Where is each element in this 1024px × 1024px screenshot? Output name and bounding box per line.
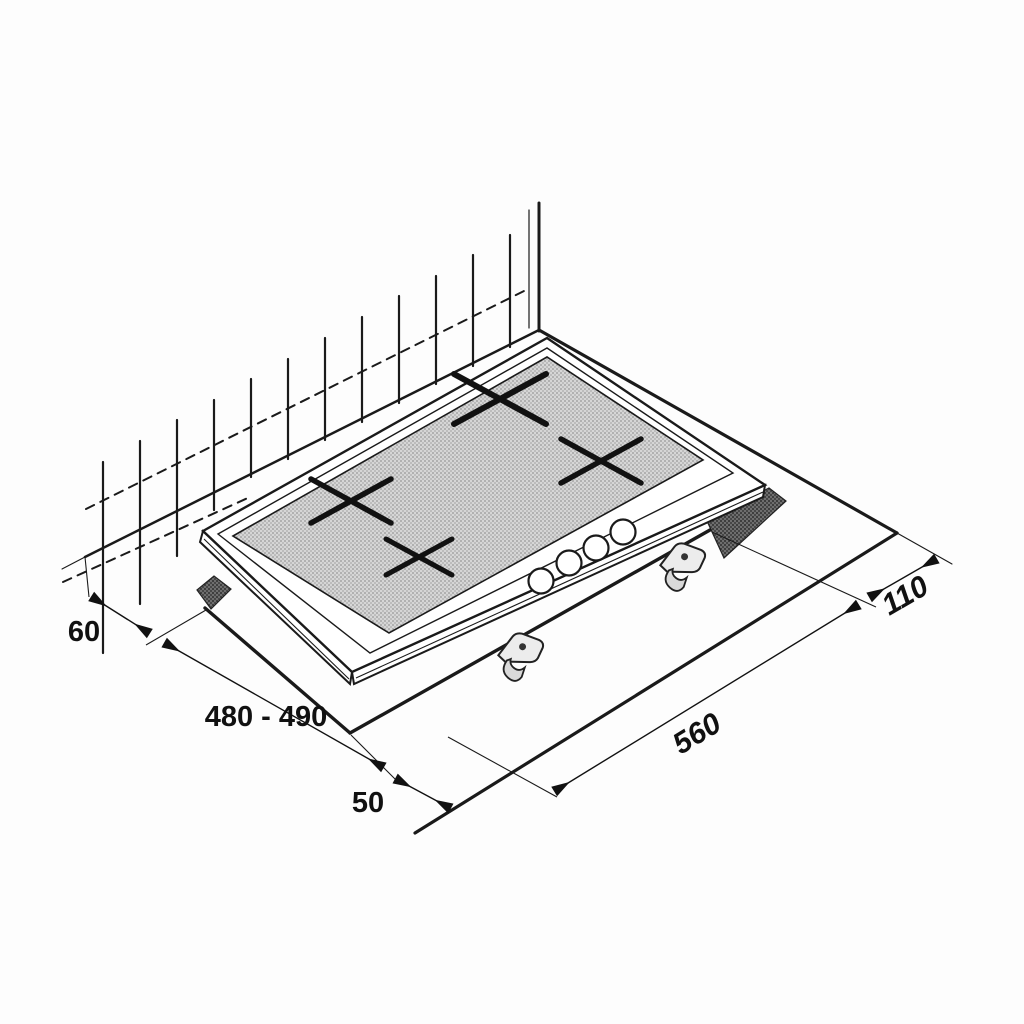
dimension-label-cutout-width: 560 xyxy=(667,707,727,761)
dimension-label-wall-clearance: 60 xyxy=(68,616,100,648)
fixing-clamp-icon xyxy=(658,541,708,592)
cutout-band-left xyxy=(197,576,231,609)
wall-base-line-ext xyxy=(62,557,85,569)
fixing-clamp-icon xyxy=(496,631,546,682)
worktop-back-edge-extension xyxy=(897,533,952,564)
installation-diagram-page: 60 480 - 490 50 560 110 xyxy=(0,0,1024,1024)
control-knob xyxy=(584,536,609,561)
control-knob xyxy=(557,551,582,576)
dimension-label-right-clearance: 110 xyxy=(876,569,934,622)
control-knob xyxy=(611,520,636,545)
hob xyxy=(200,338,765,684)
dimension-arrow-560 xyxy=(555,605,858,791)
hob-installation-diagram: 60 480 - 490 50 560 110 xyxy=(0,0,1024,1024)
dimension-arrow-50 xyxy=(396,779,450,808)
control-knob xyxy=(529,569,554,594)
dimension-label-cutout-depth: 480 - 490 xyxy=(205,701,328,733)
dimension-label-front-clearance: 50 xyxy=(352,787,384,819)
